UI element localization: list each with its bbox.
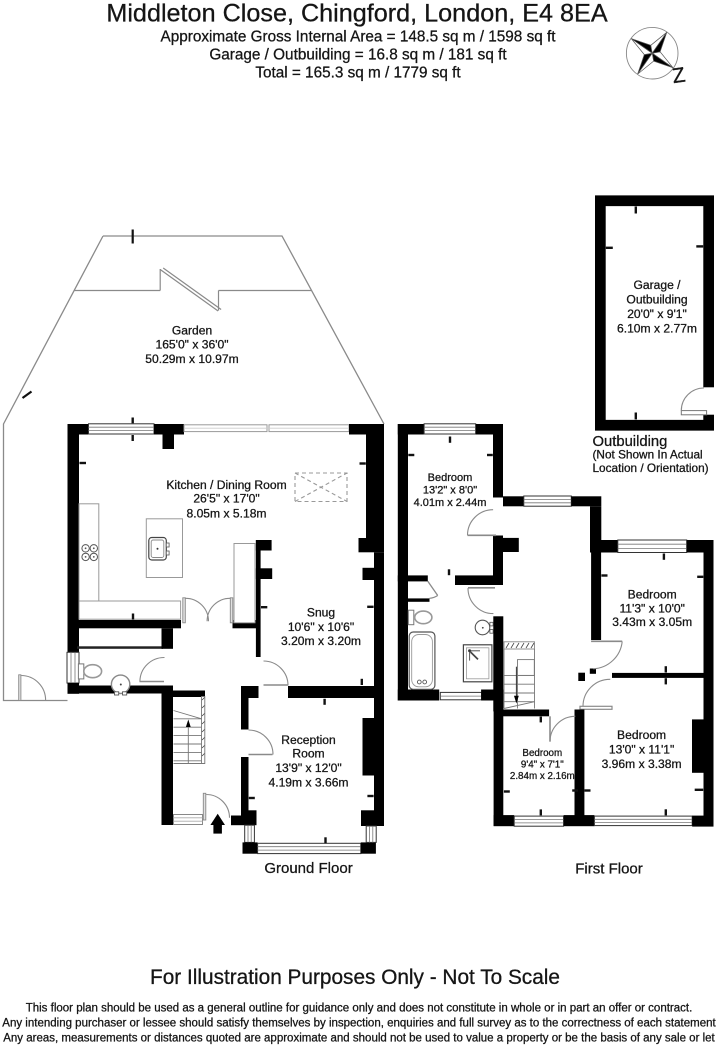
svg-text:20'0" x 9'1": 20'0" x 9'1" <box>627 307 687 321</box>
svg-text:For Illustration Purposes Only: For Illustration Purposes Only - Not To … <box>150 966 560 989</box>
svg-text:2.84m x 2.16m: 2.84m x 2.16m <box>510 771 575 782</box>
svg-text:165'0" x 36'0": 165'0" x 36'0" <box>155 338 228 352</box>
svg-text:Bedroom: Bedroom <box>628 588 677 602</box>
svg-text:Garden: Garden <box>172 324 212 338</box>
svg-text:First Floor: First Floor <box>575 861 643 878</box>
svg-text:Total = 165.3 sq m / 1779 sq f: Total = 165.3 sq m / 1779 sq ft <box>255 65 461 82</box>
svg-text:Outbuilding: Outbuilding <box>626 293 687 307</box>
svg-text:13'2" x 8'0": 13'2" x 8'0" <box>423 485 477 497</box>
svg-text:Bedroom: Bedroom <box>428 472 473 484</box>
svg-text:Kitchen / Dining Room: Kitchen / Dining Room <box>166 478 286 492</box>
svg-text:This floor plan should be used: This floor plan should be used as a gene… <box>26 1003 693 1015</box>
svg-text:10'6" x 10'6": 10'6" x 10'6" <box>288 620 354 634</box>
svg-text:Garage /: Garage / <box>633 278 681 292</box>
svg-text:Any intending purchaser or les: Any intending purchaser or lessee should… <box>2 1018 716 1030</box>
svg-text:4.19m x 3.66m: 4.19m x 3.66m <box>269 775 349 789</box>
svg-text:Middleton Close, Chingford, Lo: Middleton Close, Chingford, London, E4 8… <box>106 0 607 28</box>
svg-text:8.05m x 5.18m: 8.05m x 5.18m <box>187 506 267 520</box>
svg-text:13'0" x 11'1": 13'0" x 11'1" <box>609 743 674 757</box>
svg-text:50.29m x 10.97m: 50.29m x 10.97m <box>145 352 238 366</box>
svg-text:11'3" x 10'0": 11'3" x 10'0" <box>619 601 684 615</box>
svg-text:3.43m x 3.05m: 3.43m x 3.05m <box>612 615 692 629</box>
svg-text:Ground Floor: Ground Floor <box>264 860 352 877</box>
svg-text:3.96m x 3.38m: 3.96m x 3.38m <box>602 757 682 771</box>
svg-text:Snug: Snug <box>307 605 335 619</box>
svg-text:4.01m x 2.44m: 4.01m x 2.44m <box>414 497 487 509</box>
svg-text:Approximate Gross Internal Are: Approximate Gross Internal Area = 148.5 … <box>161 29 557 46</box>
svg-text:9'4" x 7'1": 9'4" x 7'1" <box>521 759 564 770</box>
svg-text:13'9" x 12'0": 13'9" x 12'0" <box>275 761 341 775</box>
svg-text:(Not Shown In Actual: (Not Shown In Actual <box>593 448 703 462</box>
svg-text:26'5" x 17'0": 26'5" x 17'0" <box>193 492 259 506</box>
svg-text:Bedroom: Bedroom <box>617 728 666 742</box>
svg-text:Garage / Outbuilding = 16.8 sq: Garage / Outbuilding = 16.8 sq m / 181 s… <box>209 47 507 64</box>
svg-text:Any areas, measurements or dis: Any areas, measurements or distances quo… <box>3 1033 715 1045</box>
svg-text:Location / Orientation): Location / Orientation) <box>593 461 709 475</box>
svg-text:Room: Room <box>292 747 324 761</box>
svg-text:Reception: Reception <box>281 733 335 747</box>
svg-text:6.10m x 2.77m: 6.10m x 2.77m <box>617 322 697 336</box>
svg-text:Bedroom: Bedroom <box>522 748 562 759</box>
svg-text:3.20m x 3.20m: 3.20m x 3.20m <box>281 634 361 648</box>
